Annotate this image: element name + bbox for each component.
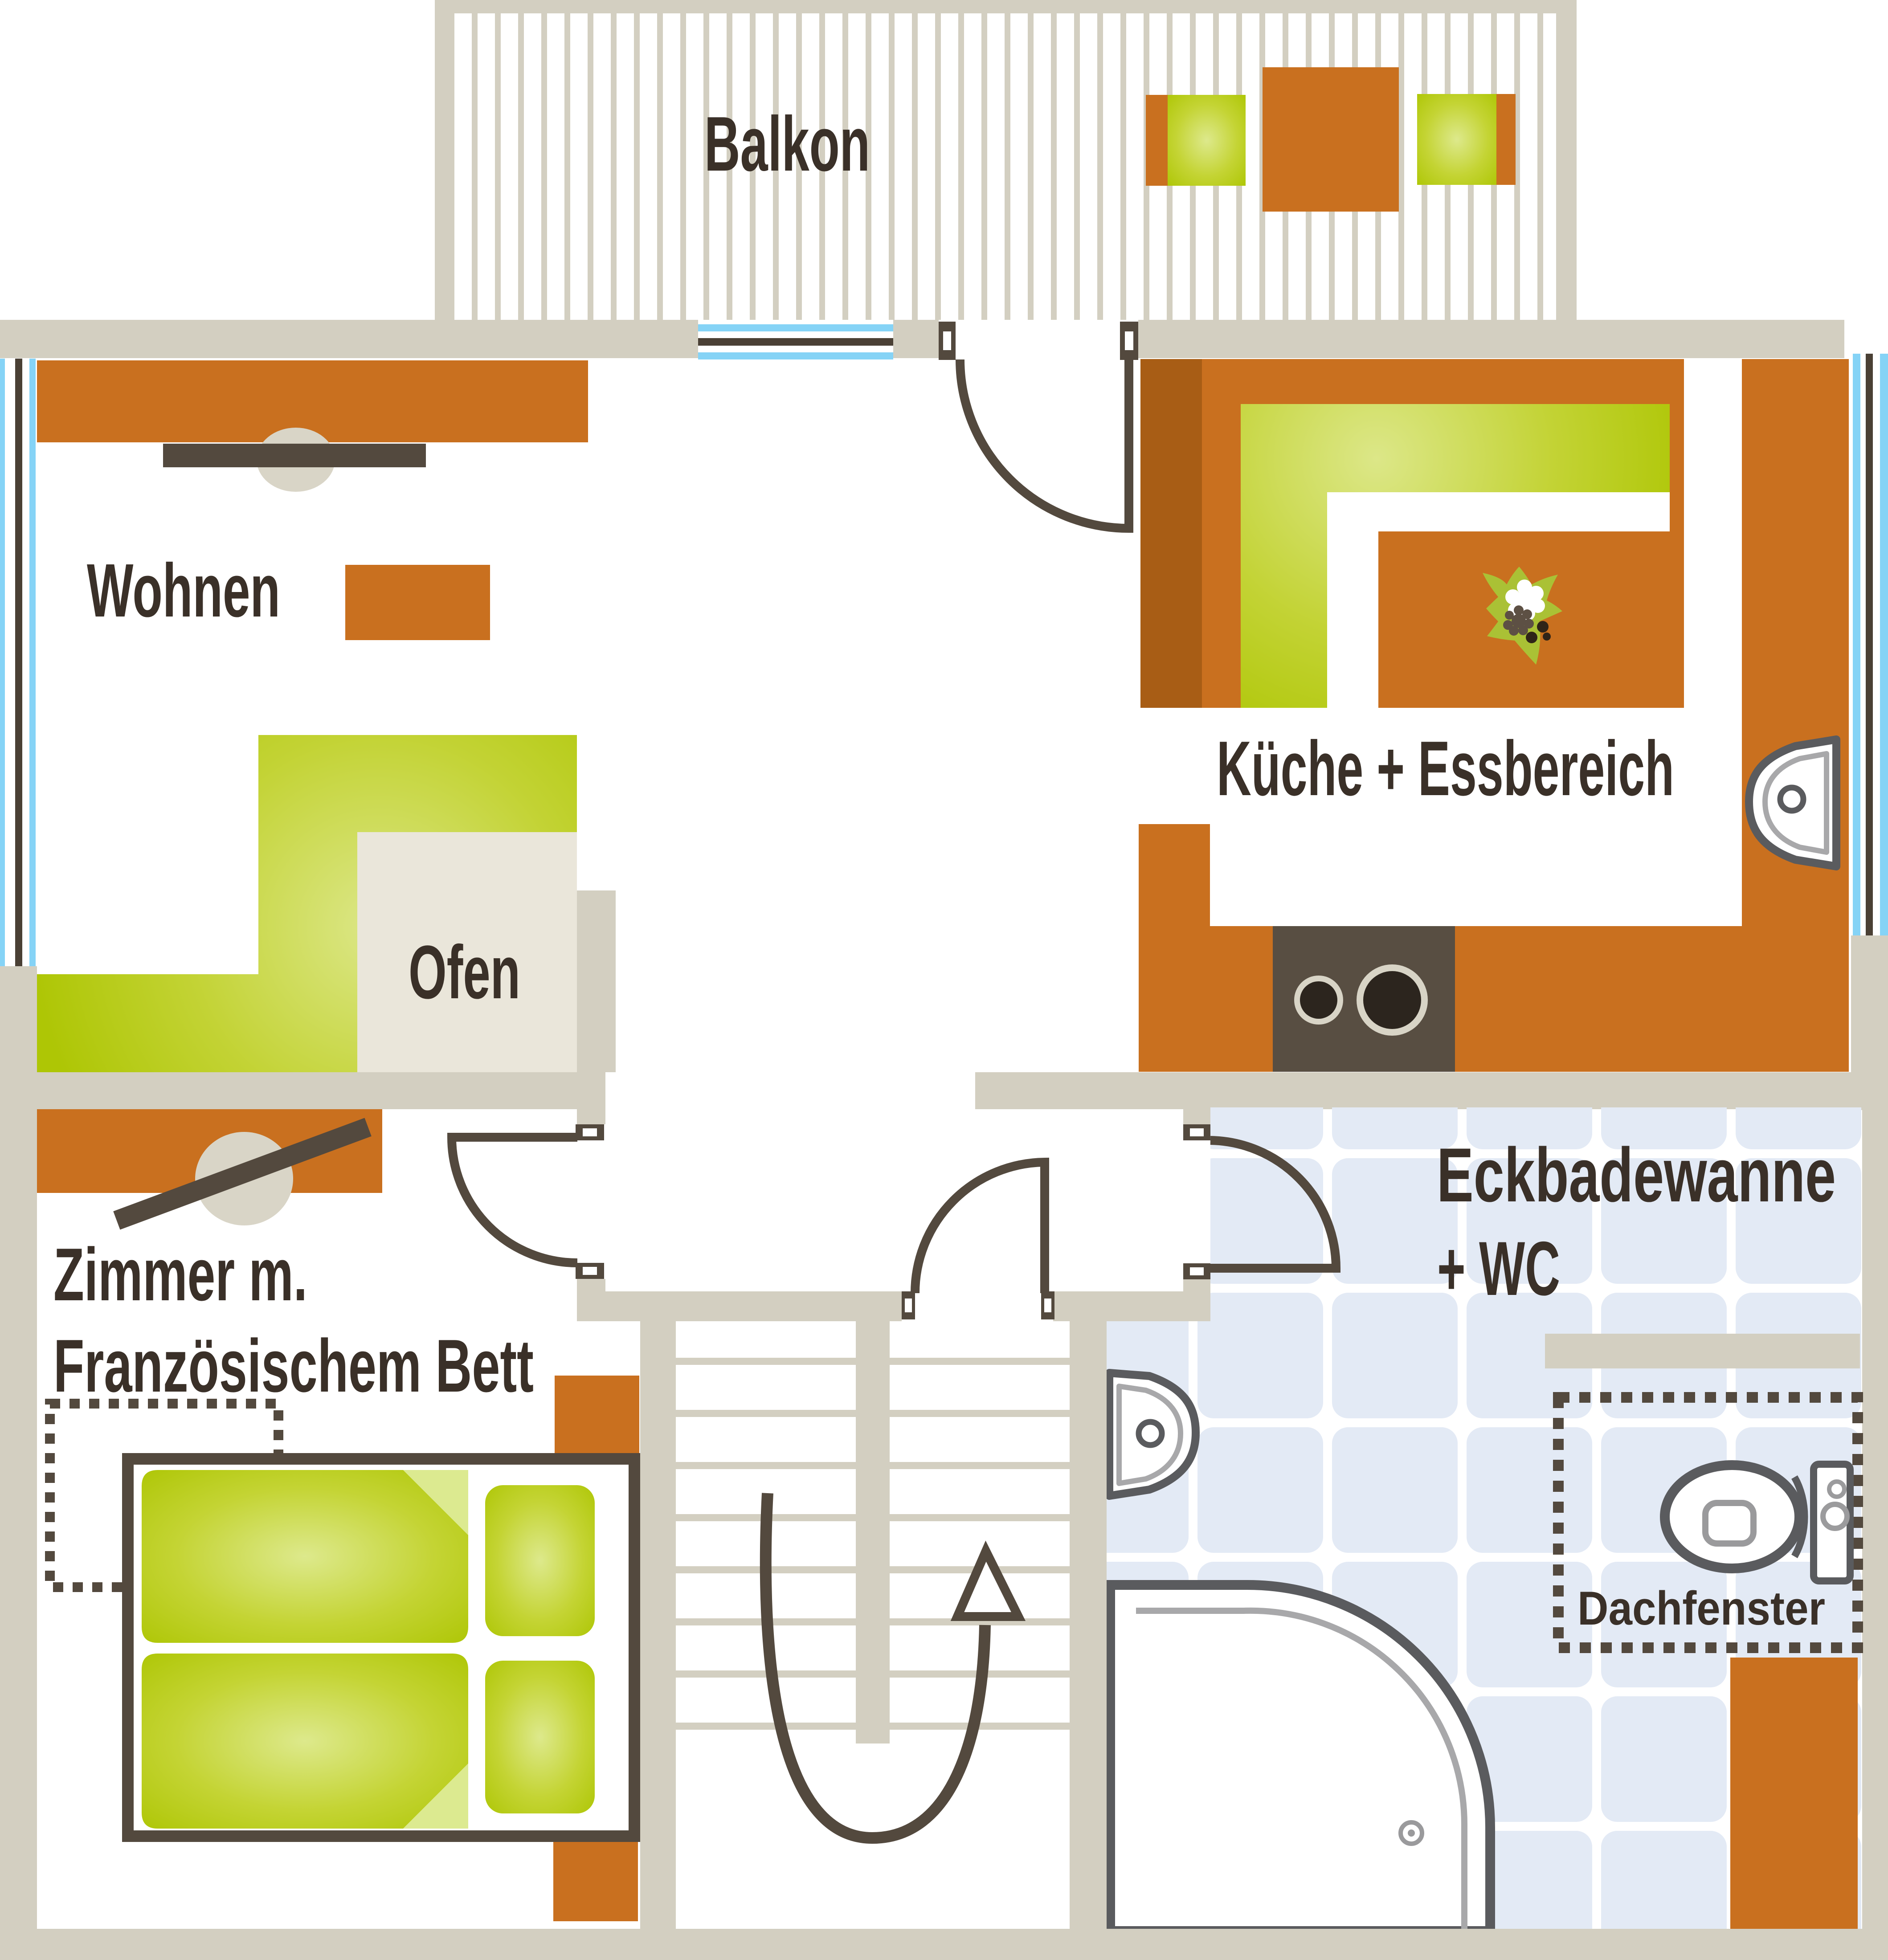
svg-text:Zimmer m.: Zimmer m. xyxy=(53,1233,307,1316)
svg-text:Dachfenster: Dachfenster xyxy=(1577,1581,1825,1635)
svg-text:Eckbadewanne: Eckbadewanne xyxy=(1437,1132,1836,1218)
svg-text:Wohnen: Wohnen xyxy=(87,548,280,633)
svg-text:Balkon: Balkon xyxy=(704,100,870,187)
svg-text:Französischem Bett: Französischem Bett xyxy=(53,1324,534,1408)
svg-text:+ WC: + WC xyxy=(1437,1226,1560,1311)
svg-text:Ofen: Ofen xyxy=(409,930,520,1015)
svg-text:Küche + Essbereich: Küche + Essbereich xyxy=(1217,725,1674,812)
